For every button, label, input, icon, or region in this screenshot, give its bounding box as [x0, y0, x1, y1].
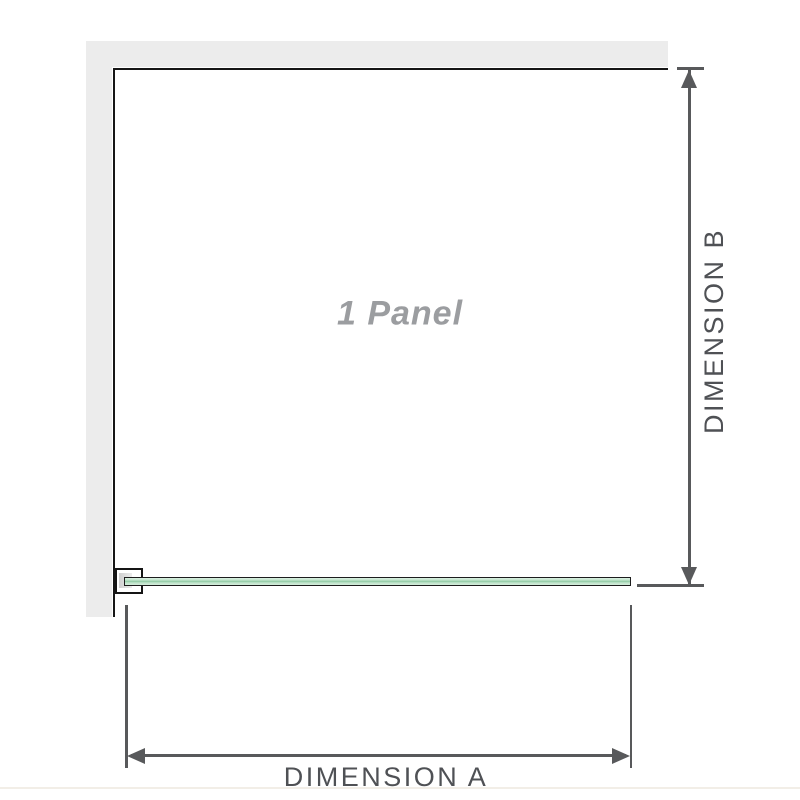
- shower-panel-dimension-diagram: 1 Panel DIMENSION B DIMENSION A: [0, 0, 800, 800]
- dimension-a-extension-right: [630, 605, 633, 768]
- wall-inner-edge-left: [113, 68, 115, 617]
- arrow-right-icon: [612, 748, 630, 764]
- arrow-up-icon: [681, 70, 697, 88]
- dimension-b-label: DIMENSION B: [699, 228, 730, 434]
- dimension-a-extension-left: [125, 605, 128, 768]
- glass-panel-bar: [124, 577, 631, 586]
- wall-inner-edge-top: [113, 68, 668, 70]
- dimension-b-line: [688, 70, 691, 585]
- dimension-a-line: [131, 754, 626, 757]
- arrow-down-icon: [681, 567, 697, 585]
- photo-edge-line: [0, 787, 800, 789]
- wall-top: [86, 41, 668, 67]
- wall-left: [86, 41, 112, 617]
- arrow-left-icon: [127, 748, 145, 764]
- panel-count-label: 1 Panel: [337, 295, 463, 334]
